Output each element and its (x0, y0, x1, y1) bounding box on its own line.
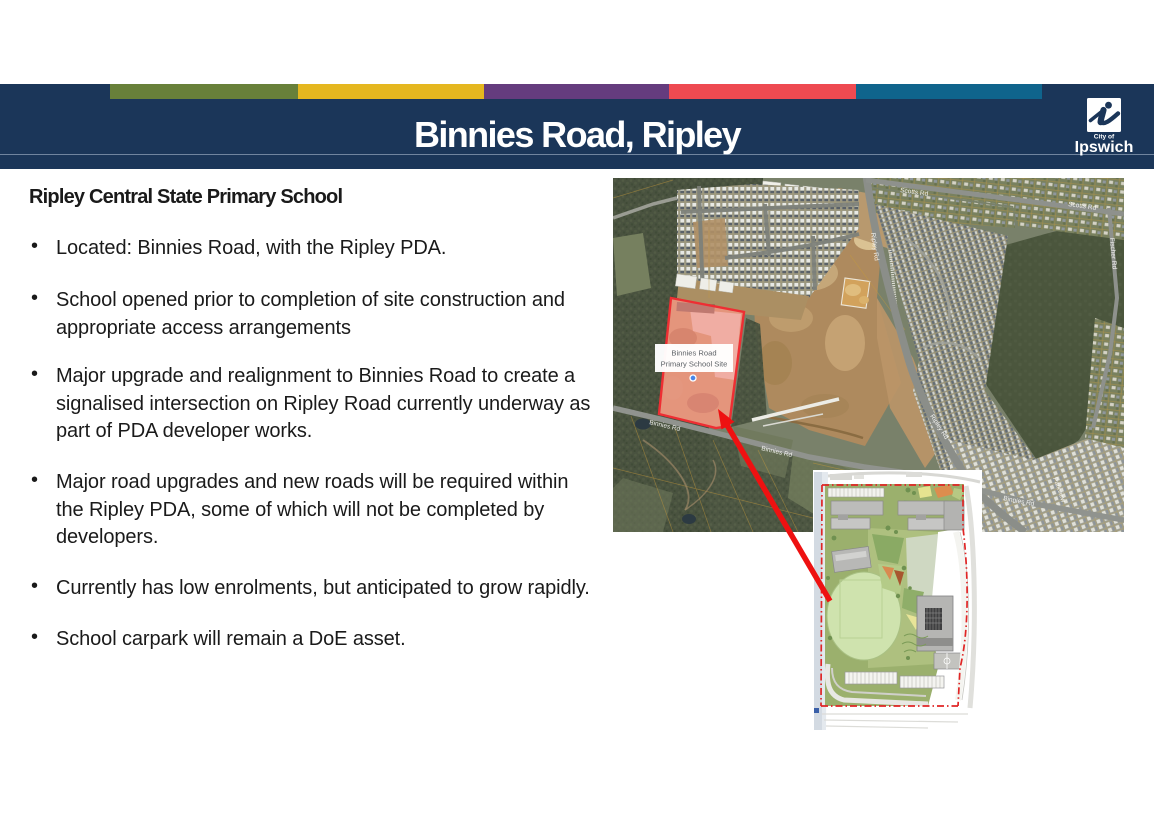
svg-text:Primary School Site: Primary School Site (661, 360, 728, 369)
svg-text:Ipswich: Ipswich (1075, 139, 1133, 156)
svg-text:Binnies Road: Binnies Road (671, 349, 716, 358)
